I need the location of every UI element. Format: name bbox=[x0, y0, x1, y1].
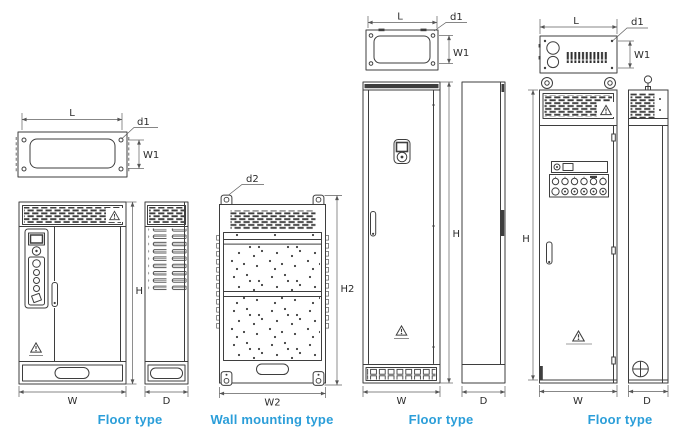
dim-label-W1: W1 bbox=[634, 50, 650, 61]
base-slot bbox=[151, 368, 183, 379]
door-latch bbox=[612, 357, 616, 364]
dim-label-W: W bbox=[397, 396, 407, 407]
dim-label-W: W bbox=[573, 396, 583, 407]
mounting-bracket bbox=[313, 372, 324, 386]
cooling-fan bbox=[633, 361, 649, 377]
cabinet-dimension-diagram: L d1 W1 bbox=[0, 0, 680, 437]
dim-label-H: H bbox=[522, 234, 530, 245]
floor3-side-view: D bbox=[629, 76, 669, 407]
door-latch bbox=[612, 134, 616, 141]
dim-label-D: D bbox=[480, 396, 488, 407]
dim-label-H2: H2 bbox=[341, 284, 355, 295]
dim-label-W1: W1 bbox=[453, 48, 469, 59]
dim-label-d2: d2 bbox=[246, 174, 259, 185]
dimension-drawings-canvas: L d1 W1 bbox=[0, 0, 680, 437]
top-vent-slot bbox=[566, 52, 607, 63]
caption-floor-type-2: Floor type bbox=[409, 412, 474, 427]
side-vent-louvers bbox=[169, 229, 187, 293]
mounting-bracket bbox=[221, 372, 232, 386]
dim-label-d1: d1 bbox=[631, 17, 644, 28]
caption-floor-type-1: Floor type bbox=[98, 412, 163, 427]
side-vent-louvers bbox=[149, 229, 167, 293]
caption-floor-type-3: Floor type bbox=[588, 412, 653, 427]
dim-label-W1: W1 bbox=[143, 150, 159, 161]
caption-wall-mounting: Wall mounting type bbox=[211, 412, 334, 427]
dim-label-W2: W2 bbox=[264, 398, 280, 409]
dim-label-D: D bbox=[643, 396, 651, 407]
dim-label-d1: d1 bbox=[137, 117, 150, 128]
door-handle-side bbox=[501, 210, 504, 236]
dim-label-L: L bbox=[397, 12, 403, 23]
dim-label-D: D bbox=[163, 396, 171, 407]
door-latch bbox=[612, 247, 616, 254]
dim-label-H: H bbox=[136, 286, 144, 297]
top-vent-grille bbox=[631, 94, 655, 119]
top-cover-strip bbox=[365, 84, 439, 88]
dim-label-L: L bbox=[573, 16, 579, 27]
dim-label-H: H bbox=[453, 229, 461, 240]
dim-label-W: W bbox=[68, 396, 78, 407]
dim-label-L: L bbox=[69, 108, 75, 119]
base-slot bbox=[257, 364, 289, 375]
base-slot bbox=[55, 368, 89, 379]
top-vent-grille bbox=[231, 211, 316, 230]
dim-label-d1: d1 bbox=[450, 12, 463, 23]
